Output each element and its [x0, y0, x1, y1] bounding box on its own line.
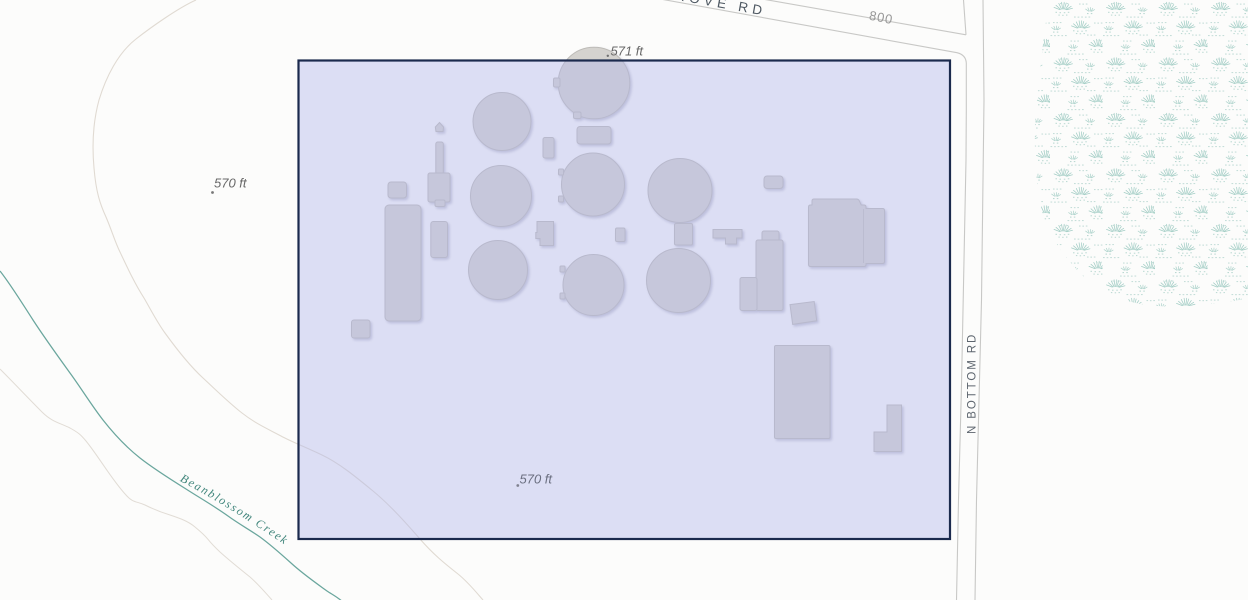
svg-text:570 ft: 570 ft	[214, 176, 248, 191]
svg-text:N BOTTOM RD: N BOTTOM RD	[967, 333, 979, 434]
svg-text:571 ft: 571 ft	[611, 44, 645, 59]
svg-text:570 ft: 570 ft	[520, 472, 554, 487]
